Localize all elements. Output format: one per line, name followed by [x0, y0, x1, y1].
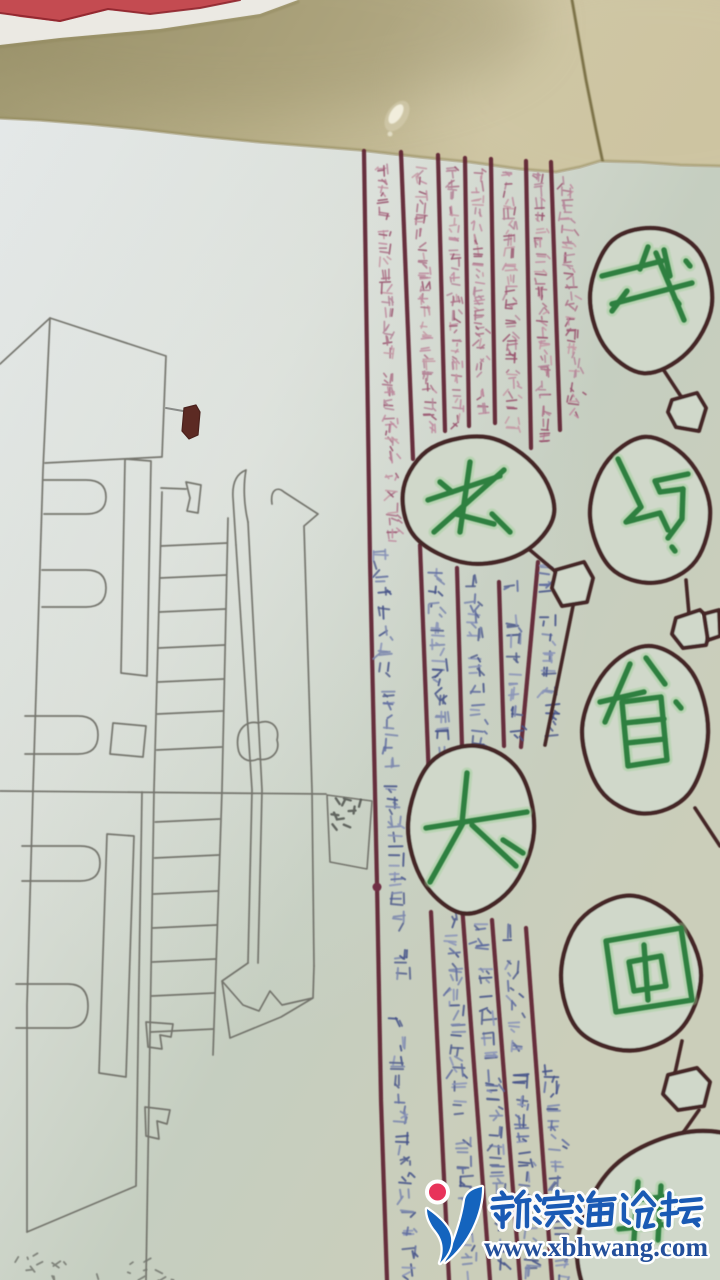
- svg-text:www.xbhwang.com: www.xbhwang.com: [484, 1232, 709, 1262]
